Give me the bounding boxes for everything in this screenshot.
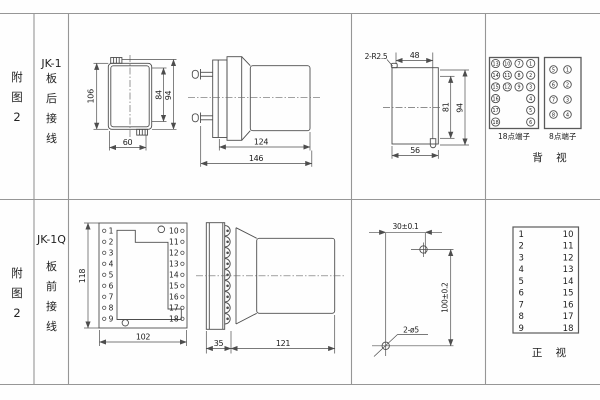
table-number-left: 7 xyxy=(519,300,524,310)
table-number-left: 8 xyxy=(519,312,524,322)
table-number-right: 15 xyxy=(563,289,574,299)
pin-number: 8 xyxy=(109,304,114,313)
terminal-bump-pin xyxy=(226,263,229,266)
stud-cap-top xyxy=(192,70,198,78)
terminal-bump-pin xyxy=(226,318,229,321)
terminal-number: 8 xyxy=(552,112,555,118)
dim-hole-spacing-h: 30±0.1 xyxy=(393,222,419,231)
relay-body xyxy=(250,66,310,131)
pin-number: 3 xyxy=(109,249,114,258)
table-number-right: 17 xyxy=(563,312,574,322)
terminal-block-8: 51627384 8点端子 xyxy=(545,58,582,142)
pin-circle xyxy=(103,240,106,243)
dim-depth-front: 35 xyxy=(214,339,224,348)
pin-circle xyxy=(103,229,106,232)
table-number-right: 10 xyxy=(563,230,574,240)
mounting-hole-bottom xyxy=(122,320,128,326)
terminal-block-8-circles: 51627384 xyxy=(550,66,572,119)
jk1-front-dims xyxy=(94,60,177,151)
jk1-front-view xyxy=(108,55,151,139)
front-view-label: 正 视 xyxy=(532,346,571,359)
terminal-number: 2 xyxy=(529,73,532,79)
cutout-outline xyxy=(392,68,438,144)
terminal-number: 10 xyxy=(504,61,510,67)
dim-height: 106 xyxy=(87,89,96,104)
table-number-right: 12 xyxy=(563,253,574,263)
table-number-right: 13 xyxy=(563,265,574,275)
table-number-left: 4 xyxy=(519,265,524,275)
pin-number: 13 xyxy=(169,260,179,269)
table-number-right: 16 xyxy=(563,300,574,310)
terminal-bump-pin xyxy=(226,285,229,288)
terminal-number: 16 xyxy=(493,96,499,102)
pin-circle xyxy=(103,251,106,254)
terminal-table: 123456789101112131415161718 xyxy=(513,227,579,334)
terminal-number: 11 xyxy=(504,73,510,79)
terminal-number: 5 xyxy=(552,67,555,73)
terminal-number: 4 xyxy=(529,96,532,102)
terminal-number: 12 xyxy=(504,85,510,91)
jk1q-front-view: 123456789101112131415161718 xyxy=(99,223,187,328)
terminal-number: 1 xyxy=(529,61,532,67)
terminal-bump-pin xyxy=(226,230,229,233)
drawing-sheet: 附图2 JK-1 板后接线 附图2 JK-1Q 板前接线 xyxy=(0,0,600,400)
table-number-left: 5 xyxy=(519,277,524,287)
terminal-number: 7 xyxy=(552,97,555,103)
terminal-number: 17 xyxy=(493,108,499,114)
dim-depth-total: 146 xyxy=(249,154,264,163)
pin-number: 9 xyxy=(109,315,114,324)
terminal-number: 15 xyxy=(493,85,499,91)
terminal-number: 5 xyxy=(529,108,532,114)
pin-circle xyxy=(103,262,106,265)
terminal-block-18-label: 18点端子 xyxy=(498,131,531,141)
dim-slot-spacing: 48 xyxy=(410,51,420,60)
pin-number: 18 xyxy=(169,315,179,324)
dim-width: 60 xyxy=(123,138,133,147)
table-grid xyxy=(0,14,600,385)
terminal-number: 14 xyxy=(493,73,499,79)
pin-number: 7 xyxy=(109,293,114,302)
terminal-block-18-circles: 131071141182151293164175186 xyxy=(492,59,535,126)
terminal-number: 1 xyxy=(566,67,569,73)
dim-panel-width: 102 xyxy=(136,333,151,342)
dim-opening-width: 56 xyxy=(410,146,420,155)
pin-circle xyxy=(103,317,106,320)
mounting-plate xyxy=(213,60,227,138)
screw-slot-bottom xyxy=(430,139,436,148)
terminal-block-18: 131071141182151293164175186 18点端子 xyxy=(490,58,539,142)
dim-total-height: 94 xyxy=(456,103,465,113)
terminal-number: 3 xyxy=(529,85,532,91)
terminal-number: 4 xyxy=(566,112,569,118)
terminal-number: 13 xyxy=(493,61,499,67)
pin-circle xyxy=(103,284,106,287)
pin-circle xyxy=(181,295,184,298)
pin-circle xyxy=(181,251,184,254)
terminal-bump-pin xyxy=(226,296,229,299)
dim-case-height: 84 xyxy=(154,90,163,100)
table-number-left: 9 xyxy=(519,324,524,334)
pin-number: 1 xyxy=(109,227,114,236)
dim-depth-body: 124 xyxy=(254,138,269,147)
pin-number: 16 xyxy=(169,293,179,302)
pin-number: 4 xyxy=(109,260,114,269)
jk1q-front-terminals: 123456789101112131415161718 xyxy=(103,227,185,324)
terminal-number: 9 xyxy=(517,85,520,91)
table-number-left: 3 xyxy=(519,253,524,263)
jk1q-side-dims xyxy=(206,315,334,354)
jk1q-side-terminal-bumps xyxy=(225,226,230,324)
jk1q-side-view xyxy=(196,223,345,330)
dim-hole-spacing-v: 100±0.2 xyxy=(440,282,449,313)
pin-circle xyxy=(181,229,184,232)
terminal-number: 2 xyxy=(566,82,569,88)
pin-number: 15 xyxy=(169,282,179,291)
terminal-bump-pin xyxy=(226,241,229,244)
table-number-left: 2 xyxy=(519,242,524,252)
pin-number: 14 xyxy=(169,271,179,280)
collar xyxy=(227,57,242,141)
dim-opening-height: 81 xyxy=(441,102,450,112)
pin-circle xyxy=(181,284,184,287)
table-number-right: 14 xyxy=(563,277,574,287)
terminal-number: 8 xyxy=(517,73,520,79)
dim-depth-body: 121 xyxy=(276,339,291,348)
dim-panel-height: 118 xyxy=(78,269,87,284)
pin-number: 5 xyxy=(109,271,114,280)
pin-number: 11 xyxy=(169,238,179,247)
pin-circle xyxy=(103,306,106,309)
pin-number: 17 xyxy=(169,304,179,313)
table-number-right: 11 xyxy=(563,242,574,252)
terminal-number: 7 xyxy=(517,61,520,67)
terminal-block-8-label: 8点端子 xyxy=(549,131,577,141)
dim-flange-height: 94 xyxy=(164,91,173,101)
pin-number: 2 xyxy=(109,238,114,247)
label-corner-radius: 2-R2.5 xyxy=(365,52,388,61)
table-number-left: 6 xyxy=(519,289,524,299)
pin-circle xyxy=(181,306,184,309)
jk1-side-view xyxy=(188,57,320,141)
pin-circle xyxy=(103,295,106,298)
table-number-right: 18 xyxy=(563,324,574,334)
terminal-bump-pin xyxy=(226,307,229,310)
pin-number: 10 xyxy=(169,227,179,236)
terminal-table-numbers: 123456789101112131415161718 xyxy=(519,230,574,334)
rear-view-label: 背 视 xyxy=(532,151,571,164)
terminal-number: 6 xyxy=(529,120,532,126)
pin-number: 12 xyxy=(169,249,179,258)
pin-circle xyxy=(103,273,106,276)
stud-cap-bottom xyxy=(192,114,198,122)
pin-circle xyxy=(181,273,184,276)
pin-number: 6 xyxy=(109,282,114,291)
terminal-number: 18 xyxy=(493,120,499,126)
terminal-number: 6 xyxy=(552,82,555,88)
pin-circle xyxy=(181,262,184,265)
pin-circle xyxy=(181,240,184,243)
terminal-number: 3 xyxy=(566,97,569,103)
table-number-left: 1 xyxy=(519,230,524,240)
mounting-hole-top xyxy=(158,226,165,233)
label-hole-size: 2-ø5 xyxy=(403,325,419,334)
drawing-canvas: 106 84 94 60 124 146 xyxy=(0,0,600,400)
terminal-bump-pin xyxy=(226,252,229,255)
